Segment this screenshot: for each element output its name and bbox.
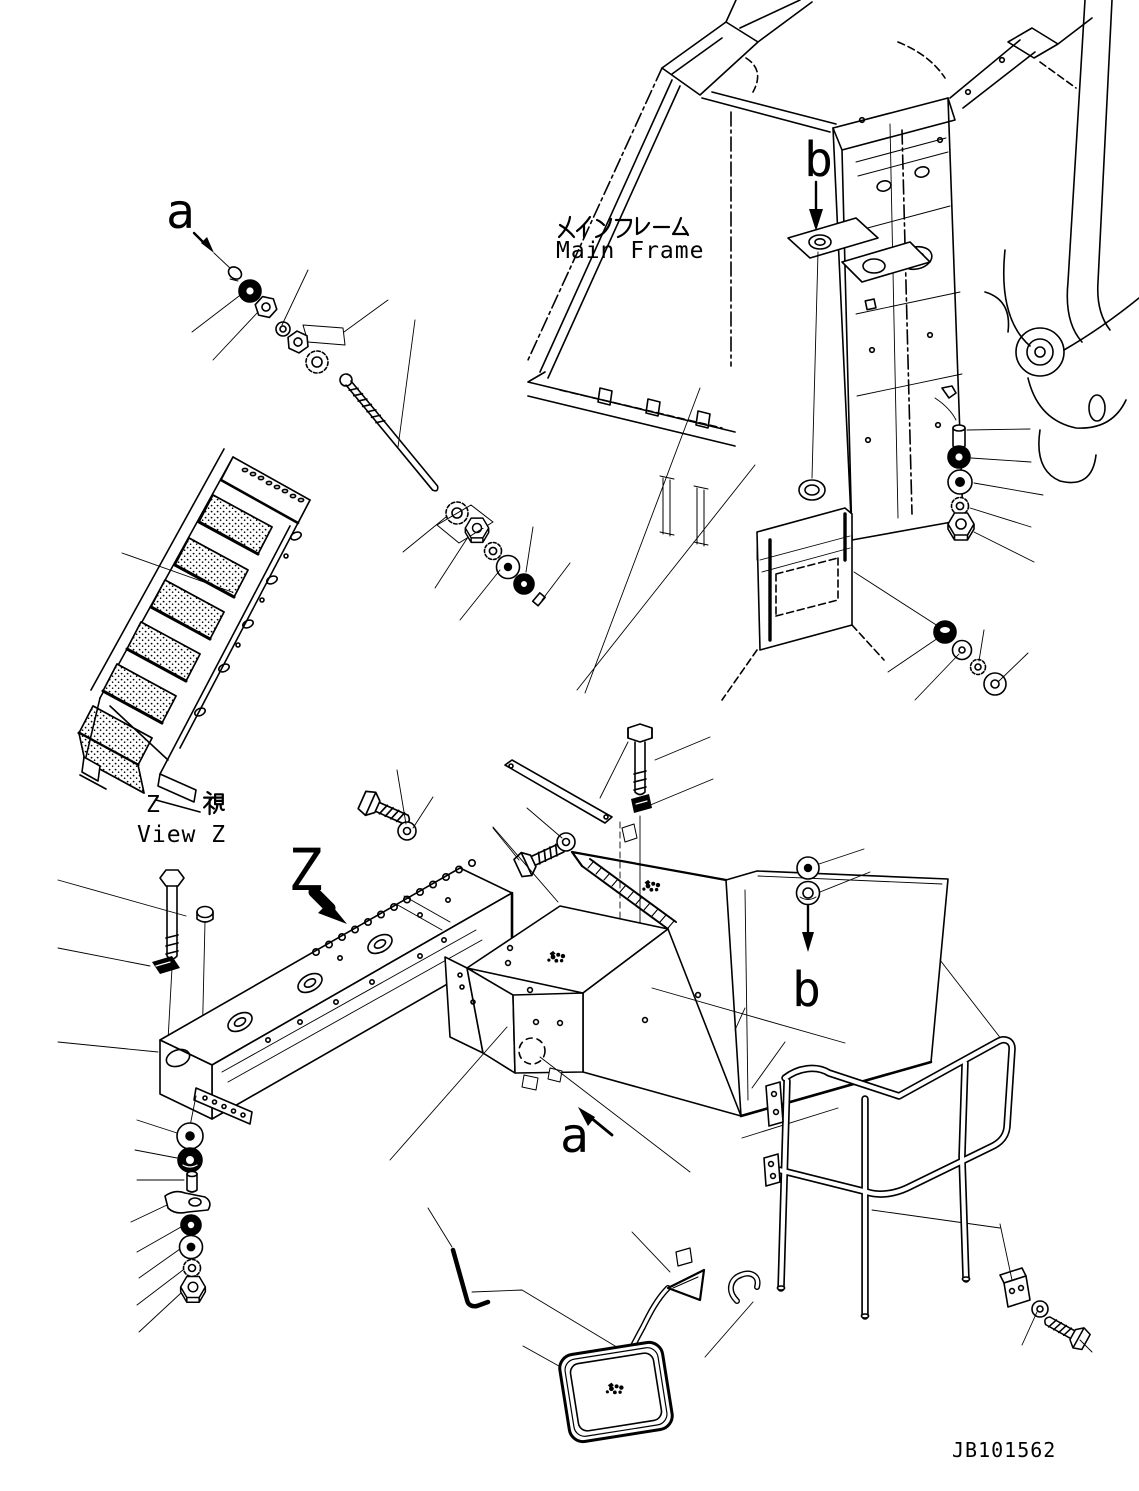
main-frame-label-jp (559, 217, 688, 237)
detail-a-top-label: a (166, 184, 195, 240)
detail-a-bottom-label: a (560, 1108, 589, 1164)
grommet-icon (948, 446, 970, 468)
square-nut-icon (631, 794, 652, 813)
bottom-left-fastener-stack (131, 1096, 210, 1332)
nut-icon (948, 513, 974, 540)
main-frame-label-en: Main Frame (556, 238, 704, 264)
right-fastener-stack (948, 425, 1043, 562)
washer-icon (984, 673, 1006, 695)
lock-nut-icon (306, 351, 328, 373)
rail-mount-bracket-icon (1000, 1268, 1030, 1307)
nut-icon (465, 518, 488, 542)
washer-icon (398, 822, 416, 840)
spacer-icon (187, 1172, 197, 1193)
mirror-figure (428, 1208, 758, 1444)
view-z-label-en: View Z (137, 822, 226, 848)
washer-icon (948, 470, 972, 494)
grommet-icon (178, 1148, 202, 1172)
mirror-arm-icon (629, 1248, 704, 1353)
bracket-plate-icon (165, 1192, 210, 1213)
detail-b-top-label: b (804, 132, 833, 188)
drawing-number: JB101562 (952, 1438, 1056, 1462)
main-frame-figure (528, 0, 1139, 700)
lock-washer-icon (952, 498, 969, 515)
stairway-figure (79, 449, 310, 812)
front-cover-face (513, 993, 583, 1073)
ring-icon (276, 322, 290, 336)
mid-fastener-chain (403, 502, 570, 620)
grommet-icon (514, 574, 534, 594)
parts-diagram: Main Frame a b Z a b Z View Z JB101562 (0, 0, 1139, 1491)
parts-diagram-page: Main Frame a b Z a b Z View Z JB101562 (0, 0, 1139, 1491)
bolt-icon (1040, 1309, 1092, 1352)
washer-icon (953, 641, 972, 660)
big-arrow-letter: Z (288, 836, 323, 904)
washer-icon (797, 857, 819, 879)
grommet-icon (181, 1215, 201, 1235)
spacer-icon (953, 425, 965, 449)
grommet-icon (239, 280, 261, 302)
nut-icon (181, 1277, 206, 1303)
plug-icon (197, 907, 213, 923)
top-center-bolts (357, 724, 713, 879)
washer-icon (1032, 1301, 1048, 1317)
cap-icon (934, 621, 956, 643)
square-nut-icon (152, 956, 180, 974)
washer-icon (180, 1236, 203, 1259)
lock-washer-icon (971, 660, 986, 675)
grommet-icon (797, 882, 820, 905)
rod-icon (453, 1250, 488, 1306)
vertical-bolt-icon (628, 724, 652, 795)
lock-washer-icon (485, 543, 502, 560)
lock-washer-icon (184, 1260, 201, 1277)
detail-b-bottom-label: b (792, 962, 821, 1018)
detail-a-top-fasteners (192, 233, 442, 494)
washer-icon (177, 1123, 203, 1149)
washer-icon (497, 556, 520, 579)
view-z-kanji (204, 792, 224, 814)
cap-chain (854, 572, 1028, 700)
small-bolt-icon (533, 593, 545, 606)
view-z-letter: Z (146, 792, 161, 818)
mirror-glass-icon (558, 1340, 674, 1443)
threaded-rod-icon (338, 372, 442, 495)
u-bolt-icon (731, 1274, 758, 1301)
support-beam-figure (58, 860, 512, 1124)
